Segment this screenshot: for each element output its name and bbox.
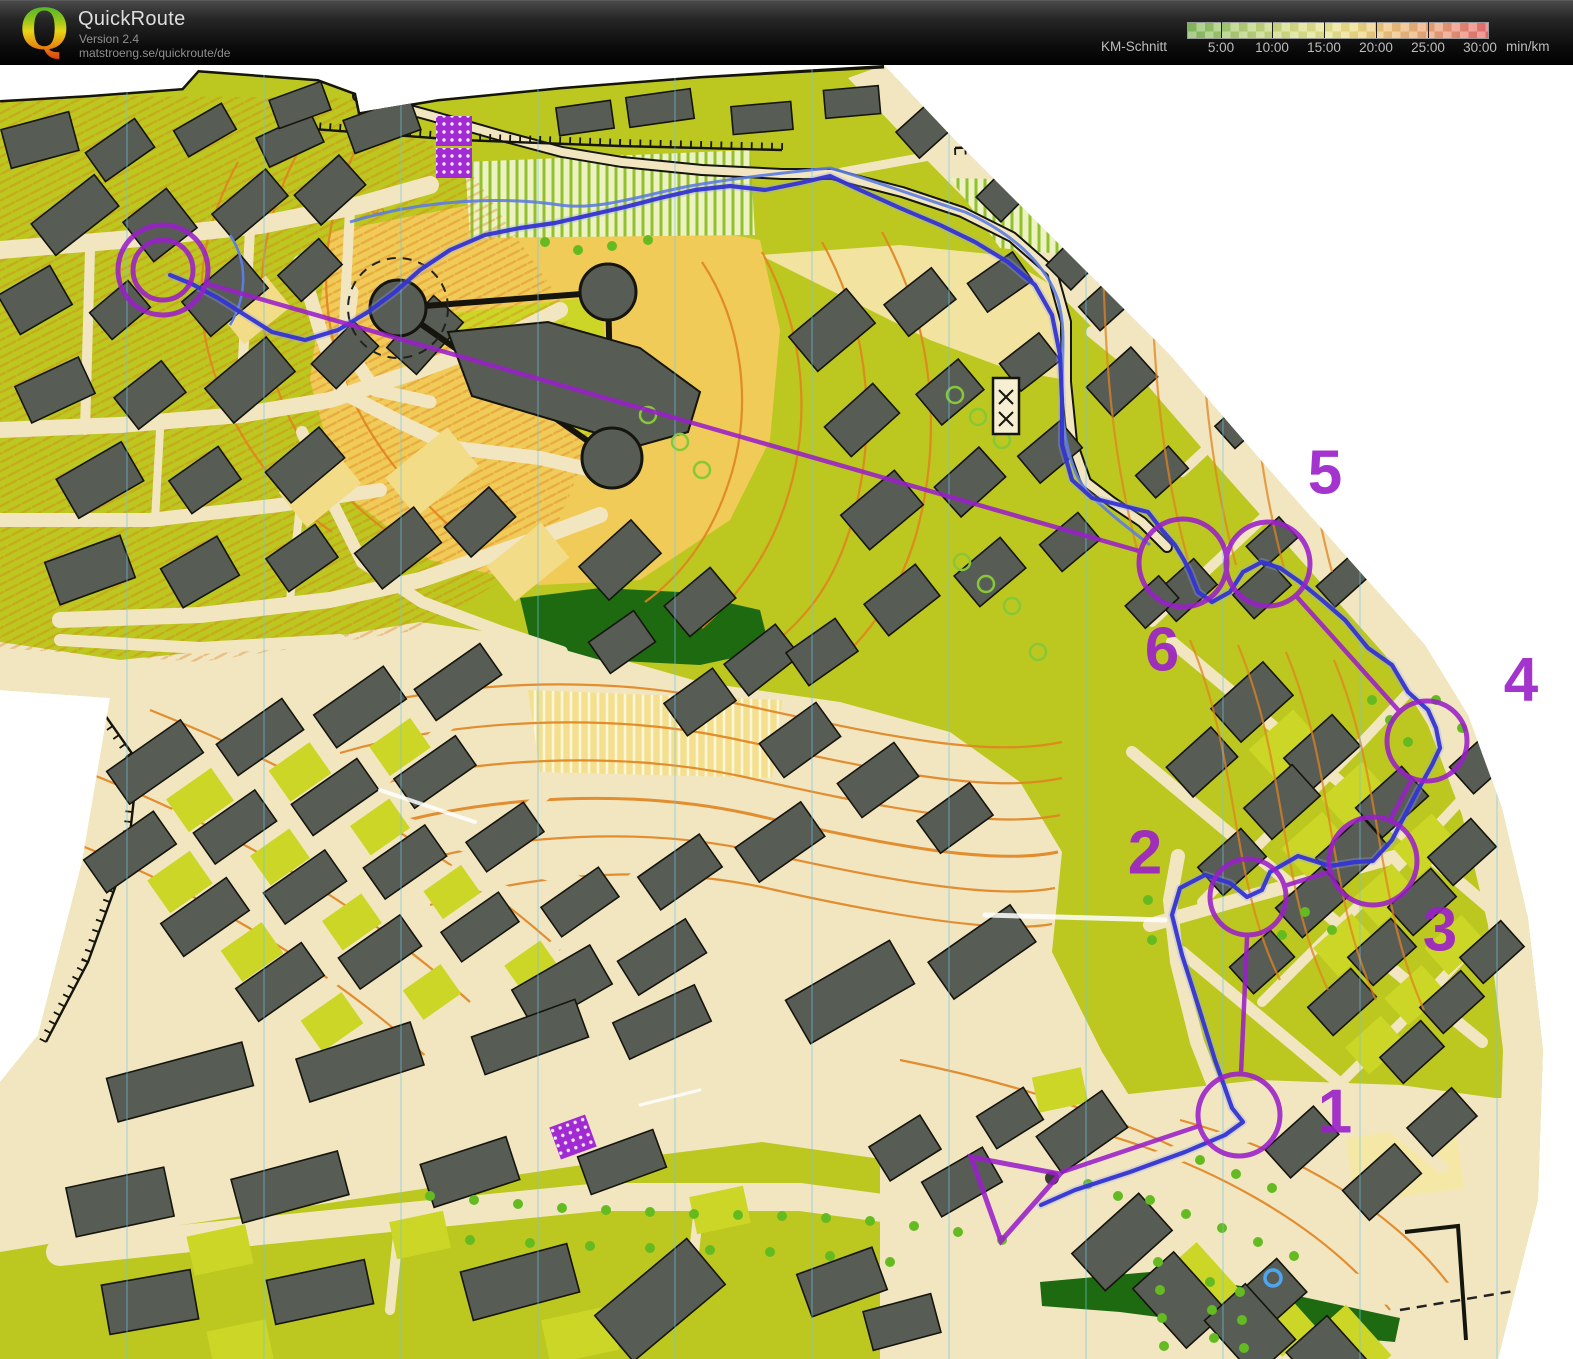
legend-unit: min/km <box>1506 39 1550 54</box>
legend-tick-label: 10:00 <box>1255 40 1289 55</box>
control-number-3: 3 <box>1423 896 1457 965</box>
legend-label: KM-Schnitt <box>1101 39 1167 54</box>
legend-tick-label: 20:00 <box>1359 40 1393 55</box>
legend-tick <box>1324 22 1325 38</box>
control-number-5: 5 <box>1308 439 1342 508</box>
legend-tick-label: 5:00 <box>1208 40 1234 55</box>
app-version: Version 2.4 <box>79 32 139 46</box>
quickroute-window: Q QuickRoute Version 2.4 matstroeng.se/q… <box>0 0 1573 1359</box>
legend-tick <box>1221 22 1222 38</box>
legend-tick <box>1376 22 1377 38</box>
legend-tick <box>1272 22 1273 38</box>
app-website: matstroeng.se/quickroute/de <box>79 46 230 60</box>
orienteering-map[interactable]: 80123456 <box>0 65 1573 1359</box>
control-number-4: 4 <box>1504 646 1539 715</box>
pace-gradient-bar[interactable] <box>1187 22 1489 39</box>
header-bar: Q QuickRoute Version 2.4 matstroeng.se/q… <box>0 0 1573 65</box>
control-number-1: 1 <box>1318 1078 1352 1147</box>
quickroute-logo-icon: Q <box>20 0 69 61</box>
legend-tick-label: 15:00 <box>1307 40 1341 55</box>
control-number-6: 6 <box>1145 616 1179 685</box>
legend-tick-label: 30:00 <box>1463 40 1497 55</box>
legend-tick <box>1428 22 1429 38</box>
app-title: QuickRoute <box>78 8 186 31</box>
map-canvas[interactable]: 80123456 <box>0 65 1573 1359</box>
legend-tick-label: 25:00 <box>1411 40 1445 55</box>
control-number-2: 2 <box>1128 819 1162 888</box>
